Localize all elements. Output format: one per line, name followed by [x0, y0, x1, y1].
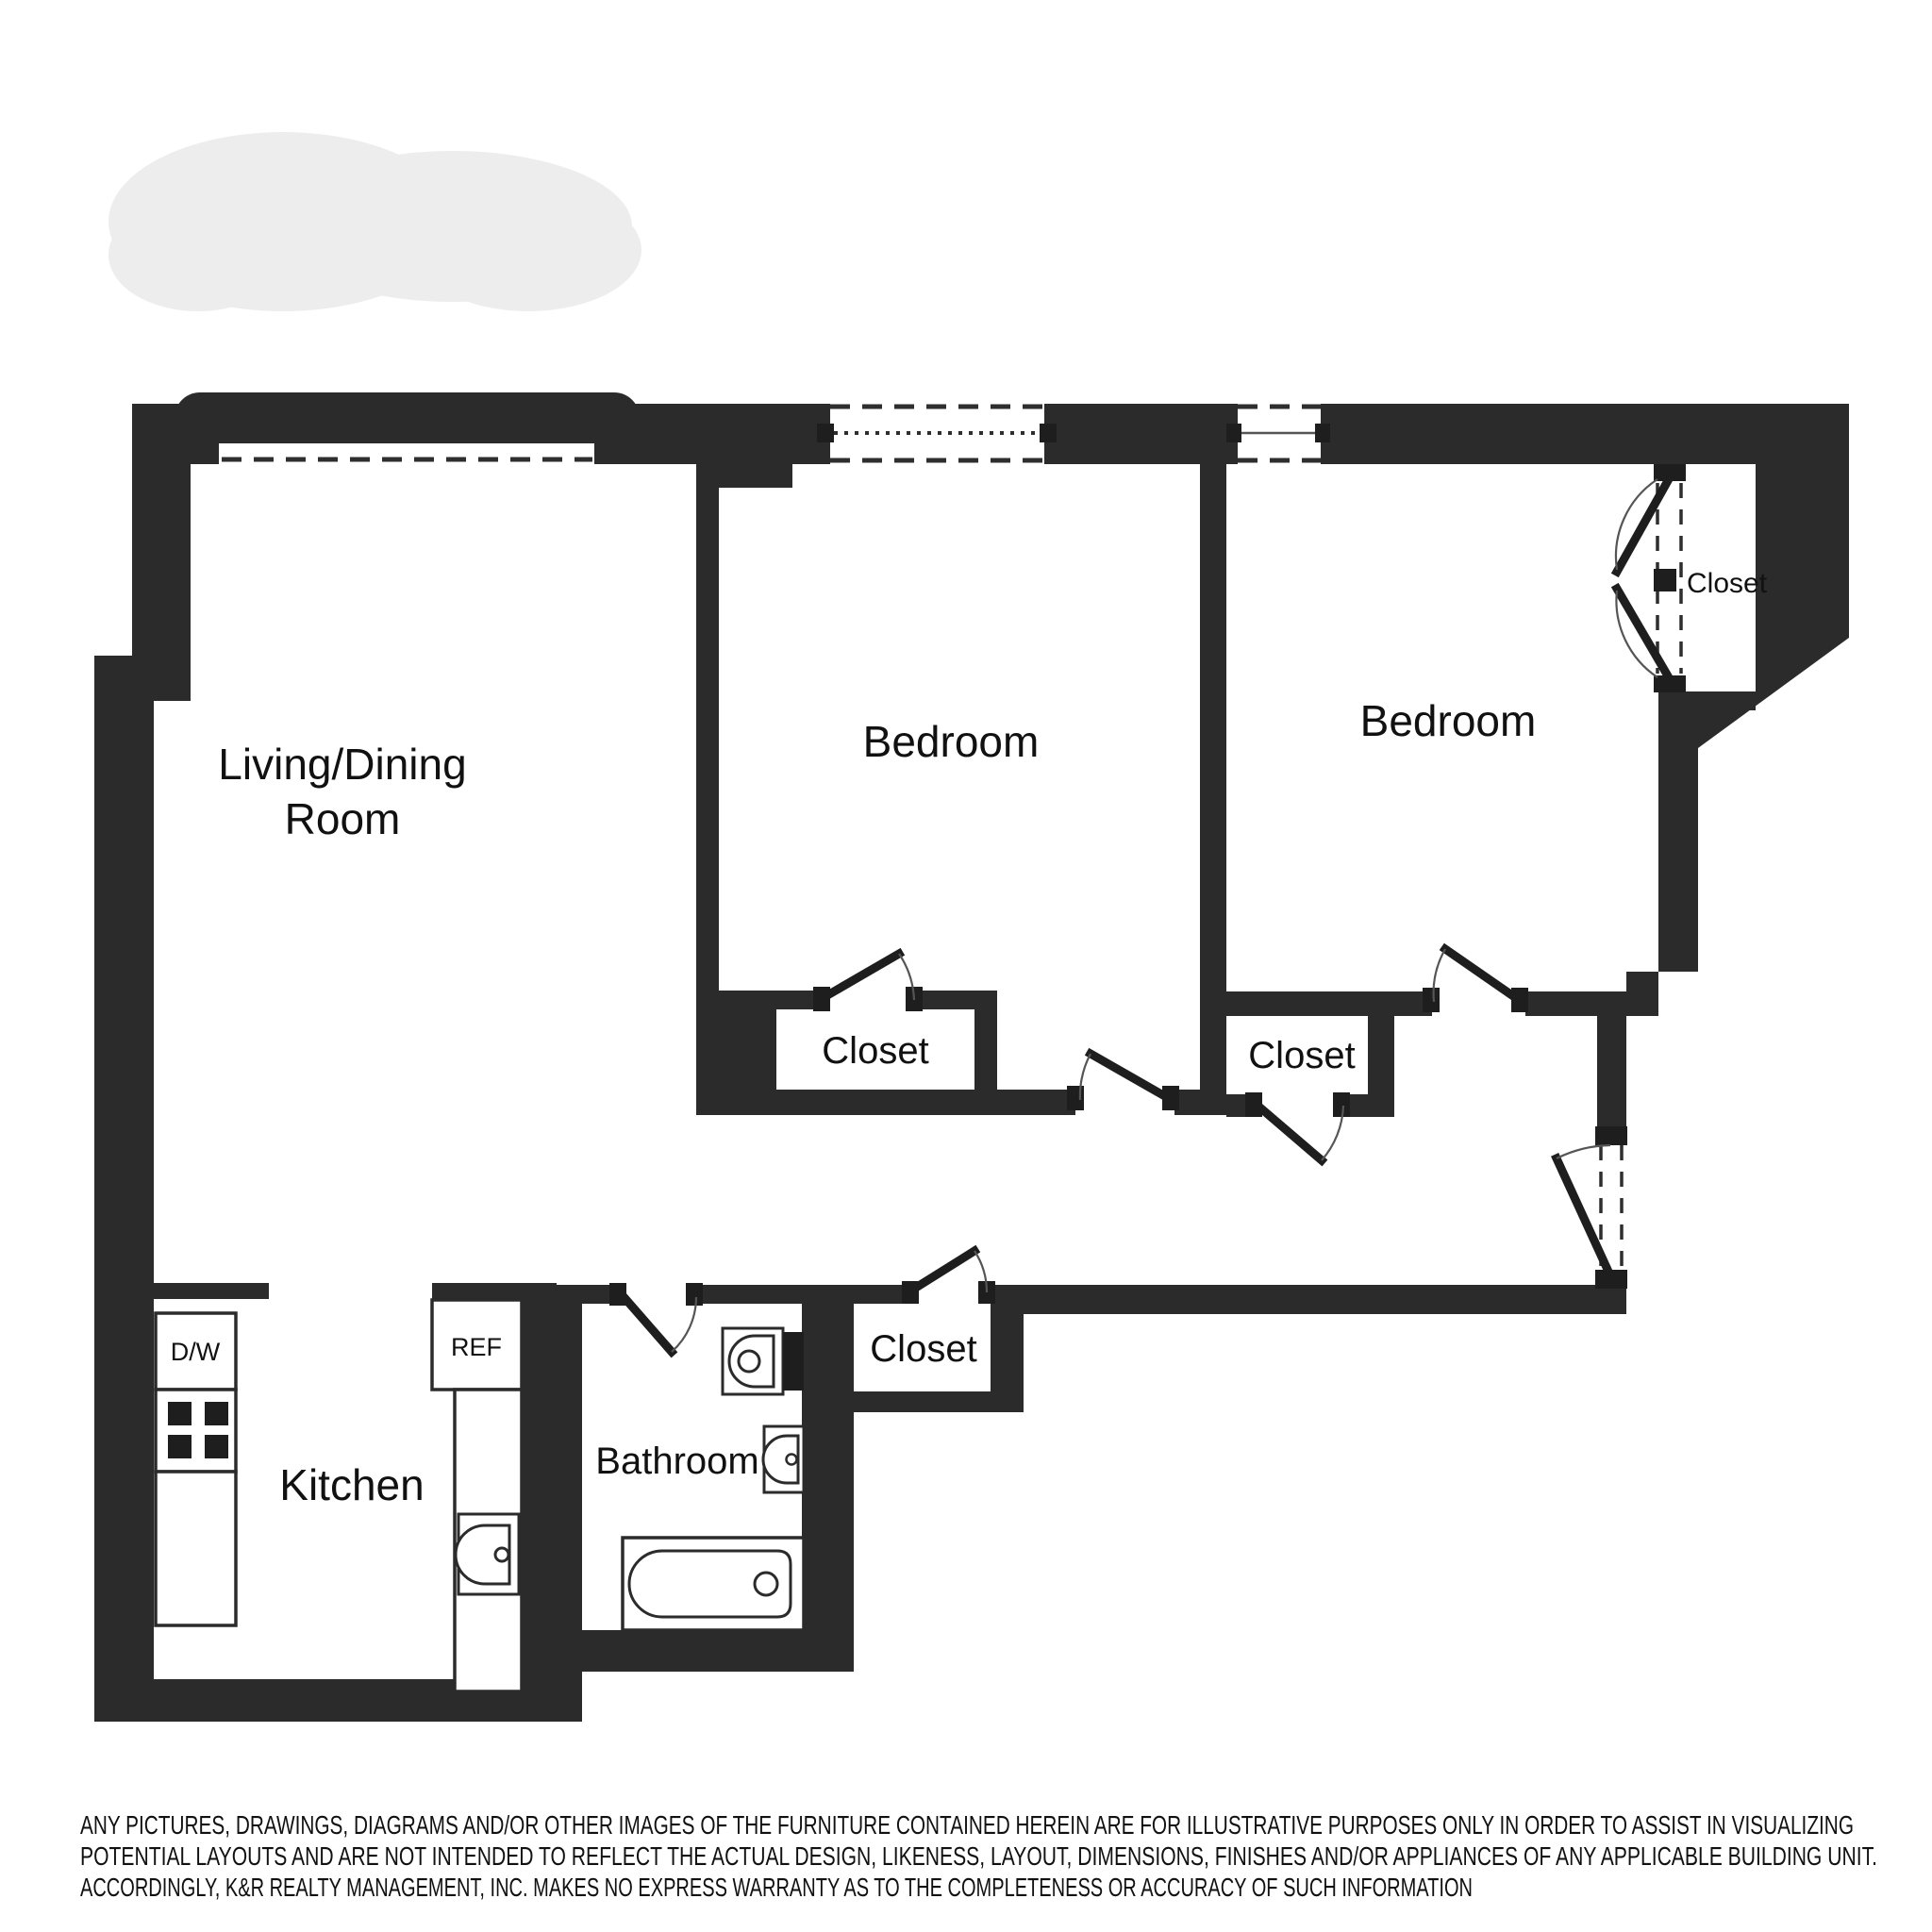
refrigerator-label: REF	[451, 1333, 502, 1361]
left-bedroom-entry-door	[1067, 1054, 1179, 1110]
disclaimer: ANY PICTURES, DRAWINGS, DIAGRAMS AND/OR …	[80, 1810, 1877, 1902]
right-bedroom-window	[1226, 407, 1330, 460]
floor-plan-page: Living/Dining Room Bedroom Bedroom Kitch…	[0, 0, 1932, 1932]
bathroom-label: Bathroom	[595, 1441, 758, 1482]
watermark-smudge	[108, 132, 641, 311]
bathroom-sink	[763, 1426, 804, 1492]
living-dining-label-line2: Room	[285, 794, 401, 843]
left-bedroom-label: Bedroom	[863, 717, 1040, 766]
right-bedroom-label: Bedroom	[1360, 696, 1537, 745]
living-room-window	[175, 392, 640, 459]
left-bedroom-closet-door	[813, 954, 923, 1011]
stove	[156, 1390, 236, 1472]
corner-closet-label: Closet	[1687, 568, 1768, 599]
right-bedroom-entry-door	[1423, 949, 1528, 1012]
kitchen-counter-left	[156, 1472, 236, 1625]
labels: Living/Dining Room Bedroom Bedroom Kitch…	[171, 568, 1768, 1509]
south-hall-closet-door	[902, 1251, 995, 1304]
kitchen-label: Kitchen	[279, 1460, 424, 1509]
bathroom-door	[609, 1283, 703, 1352]
left-bedroom-window	[817, 407, 1057, 460]
kitchen-sink	[456, 1514, 519, 1594]
doors	[609, 464, 1686, 1352]
walls	[94, 404, 1849, 1722]
living-dining-label-line1: Living/Dining	[218, 740, 466, 789]
toilet	[723, 1328, 804, 1394]
left-bedroom-closet-label: Closet	[822, 1030, 928, 1072]
bathtub	[623, 1538, 804, 1630]
disclaimer-line-2: POTENTIAL LAYOUTS AND ARE NOT INTENDED T…	[80, 1841, 1877, 1871]
corner-closet-bifold-doors	[1616, 464, 1686, 692]
disclaimer-line-1: ANY PICTURES, DRAWINGS, DIAGRAMS AND/OR …	[80, 1810, 1854, 1840]
hall-closet-door	[1245, 1092, 1350, 1160]
radiator	[175, 392, 640, 443]
hall-closet-label: Closet	[1248, 1035, 1355, 1076]
floor-plan-drawing: Living/Dining Room Bedroom Bedroom Kitch…	[0, 0, 1932, 1932]
disclaimer-line-3: ACCORDINGLY, K&R REALTY MANAGEMENT, INC.…	[80, 1873, 1473, 1902]
south-hall-closet-label: Closet	[870, 1328, 976, 1370]
dishwasher-label: D/W	[171, 1338, 221, 1366]
